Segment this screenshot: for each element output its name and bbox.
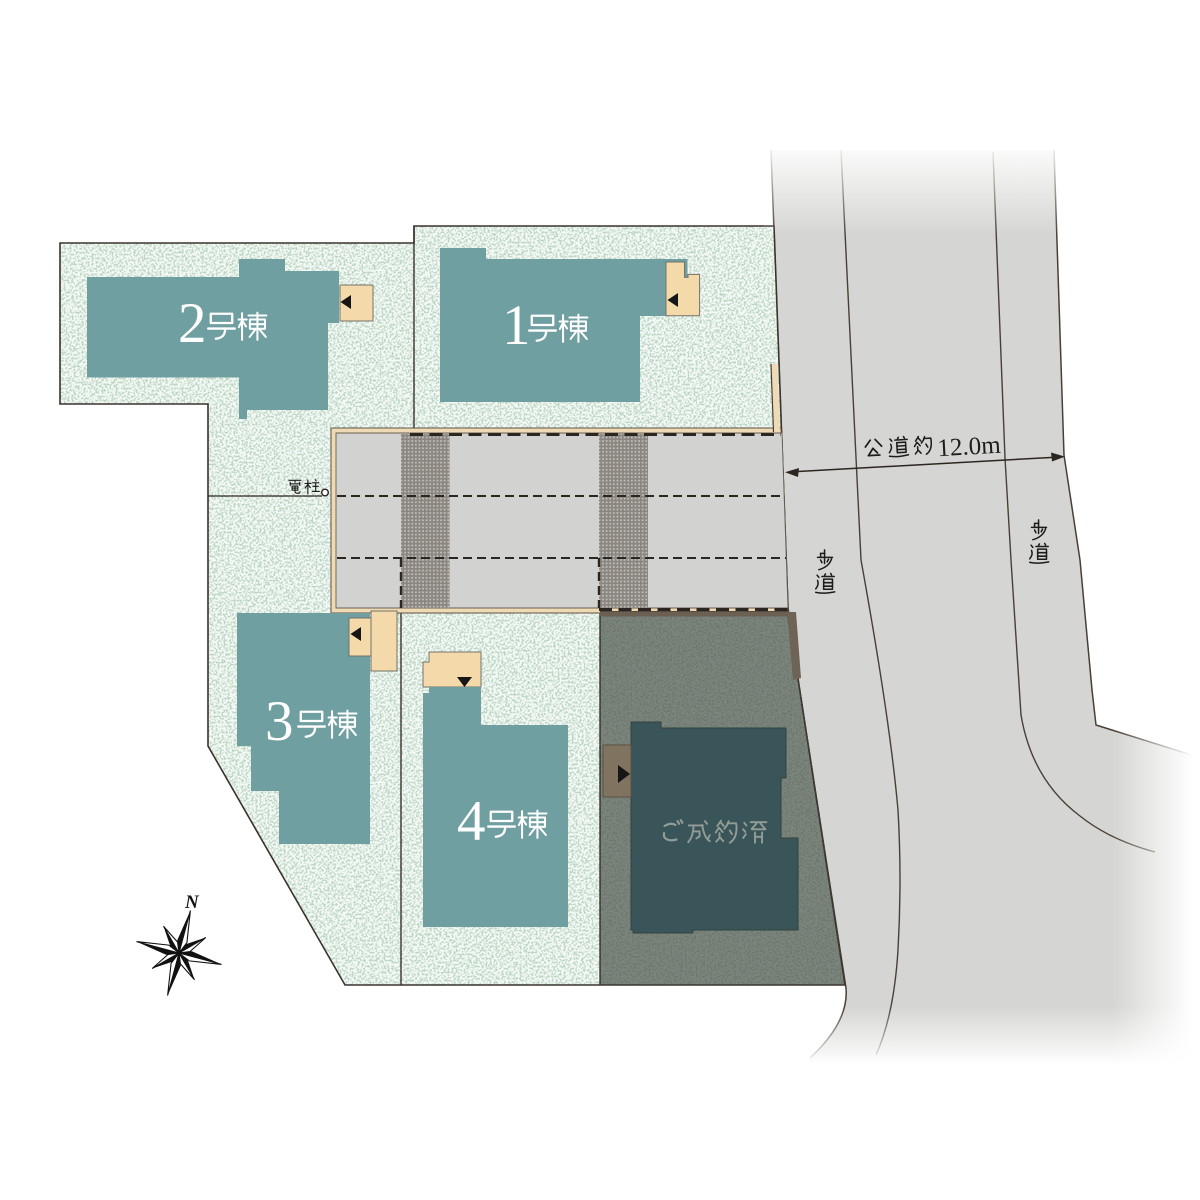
svg-text:1: 1	[502, 294, 531, 357]
svg-text:N: N	[184, 892, 200, 913]
svg-text:12.0m: 12.0m	[937, 432, 1002, 463]
svg-text:3: 3	[265, 690, 294, 753]
svg-text:2: 2	[178, 292, 207, 355]
svg-text:4: 4	[457, 790, 486, 853]
